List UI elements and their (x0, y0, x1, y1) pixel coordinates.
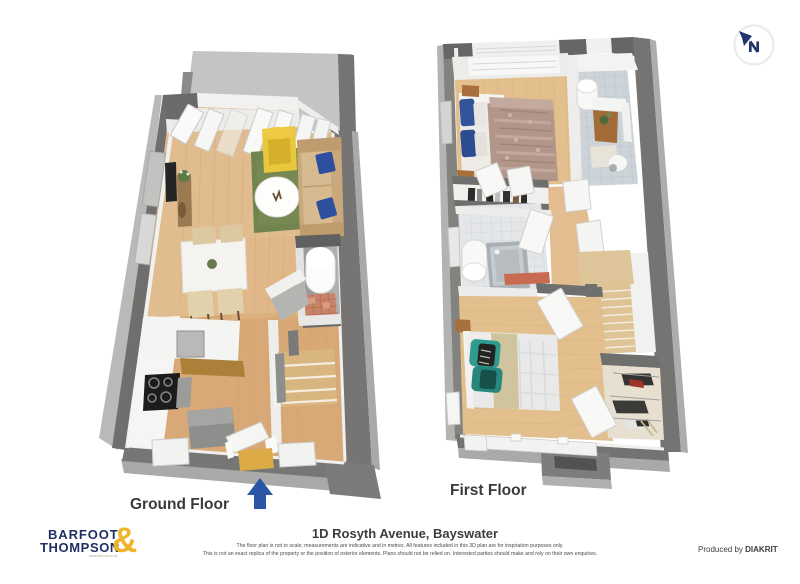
svg-text:THOMPSON: THOMPSON (40, 540, 120, 555)
svg-text:First Floor: First Floor (450, 482, 527, 499)
svg-text:www.barfoot.co.nz: www.barfoot.co.nz (89, 554, 118, 558)
svg-text:The floor plan is not to scale: The floor plan is not to scale; measurem… (237, 543, 564, 549)
svg-text:Produced by DIAKRIT: Produced by DIAKRIT (698, 545, 778, 554)
svg-text:Ground Floor: Ground Floor (130, 496, 229, 513)
svg-text:1D Rosyth Avenue, Bayswater: 1D Rosyth Avenue, Bayswater (312, 526, 498, 541)
svg-text:This is not an exact replica o: This is not an exact replica of the prop… (203, 551, 597, 557)
